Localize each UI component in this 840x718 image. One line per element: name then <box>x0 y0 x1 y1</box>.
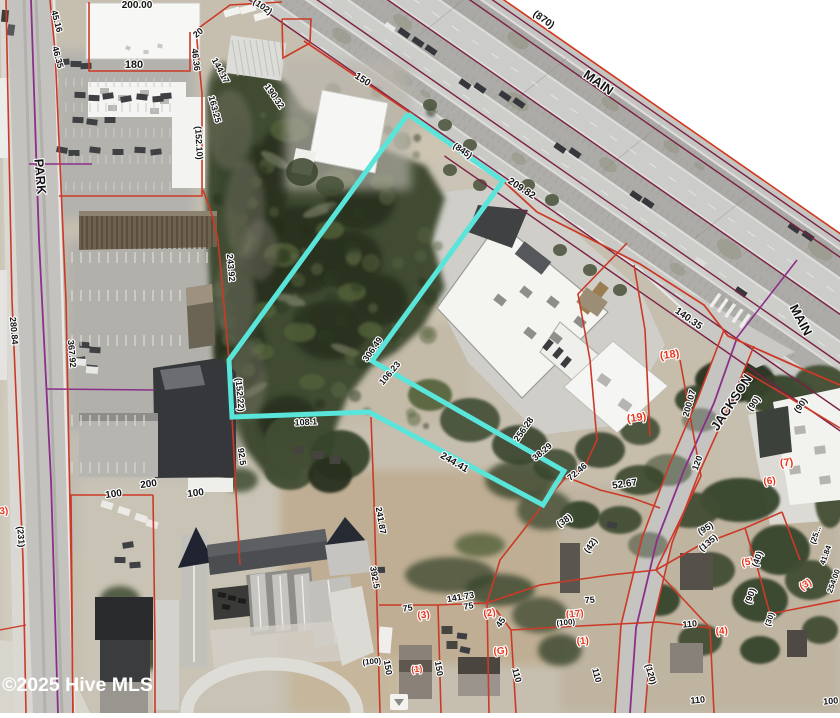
svg-text:(4): (4) <box>715 625 728 637</box>
svg-text:180: 180 <box>125 59 143 71</box>
svg-text:PARK: PARK <box>31 158 49 196</box>
svg-text:108.1: 108.1 <box>294 416 317 427</box>
svg-text:(3): (3) <box>417 609 431 622</box>
svg-text:©2025 Hive MLS: ©2025 Hive MLS <box>2 674 153 696</box>
svg-text:(2): (2) <box>483 607 497 620</box>
svg-text:(6): (6) <box>763 475 777 488</box>
svg-text:3): 3) <box>0 506 9 518</box>
svg-text:(G): (G) <box>493 645 508 657</box>
svg-text:110: 110 <box>690 694 705 705</box>
svg-text:(7): (7) <box>779 456 794 470</box>
svg-text:(100): (100) <box>362 656 382 667</box>
svg-text:110: 110 <box>682 618 697 629</box>
svg-text:(1): (1) <box>576 635 589 647</box>
svg-text:75: 75 <box>584 595 595 606</box>
svg-text:100: 100 <box>823 695 839 706</box>
svg-text:(231): (231) <box>15 526 27 548</box>
svg-text:(152.10): (152.10) <box>193 126 205 160</box>
svg-text:75: 75 <box>463 600 475 612</box>
svg-text:200.00: 200.00 <box>122 0 153 11</box>
svg-text:75: 75 <box>402 602 413 613</box>
svg-text:(100): (100) <box>556 617 576 628</box>
svg-text:(1): (1) <box>411 664 423 675</box>
